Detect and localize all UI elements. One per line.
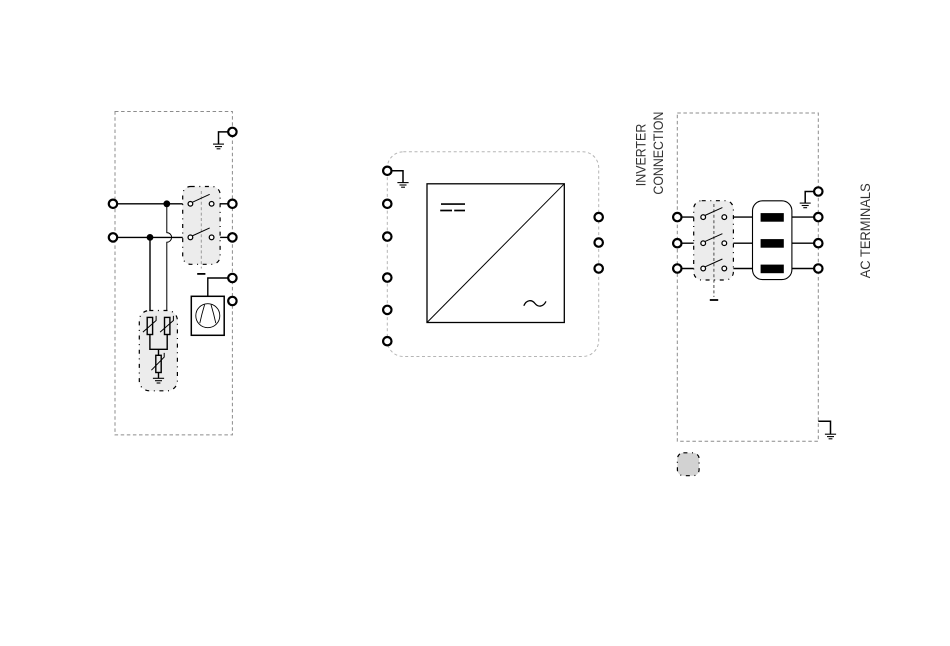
svg-text:AC TERMINALS: AC TERMINALS	[858, 183, 873, 278]
svg-text:CONNECTION: CONNECTION	[651, 112, 666, 195]
svg-text:INVERTER: INVERTER	[634, 124, 649, 187]
